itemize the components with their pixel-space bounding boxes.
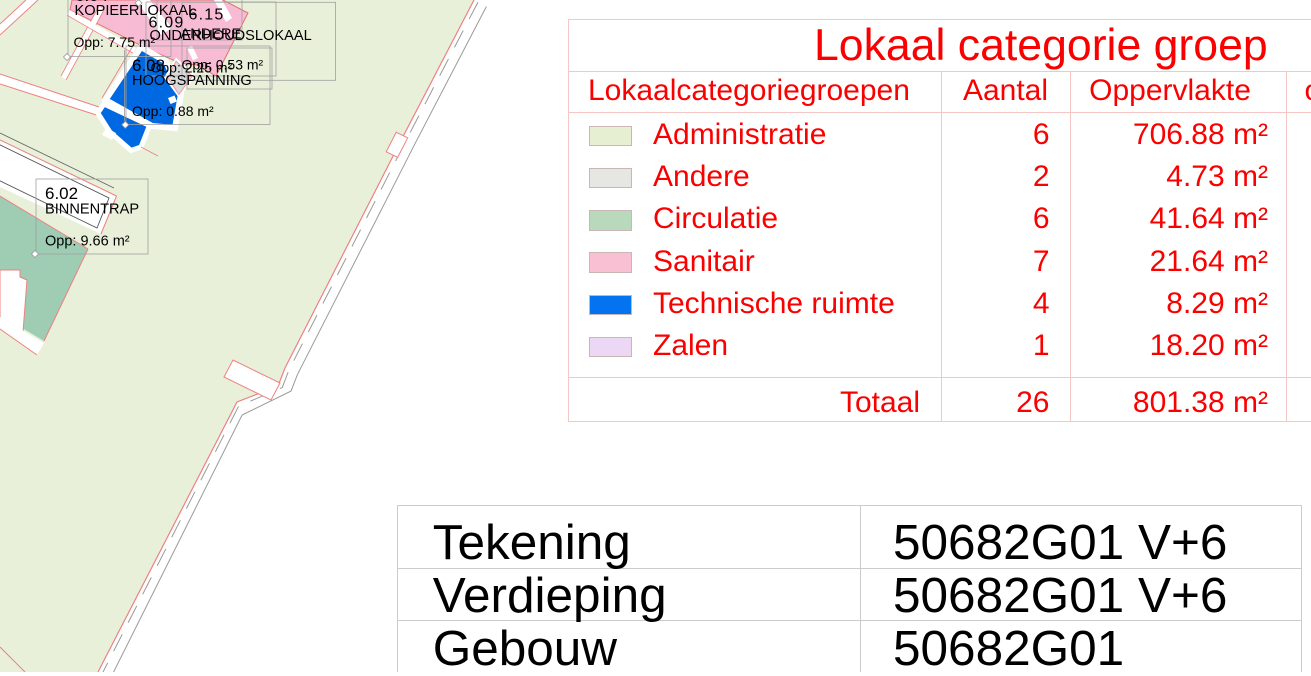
svg-text:Opp: 0.53 m²: Opp: 0.53 m² [182,56,264,72]
svg-text:Opp: 7.75 m²: Opp: 7.75 m² [74,34,156,50]
svg-text:Opp: 9.66 m²: Opp: 9.66 m² [45,233,130,249]
svg-text:HOOGSPANNING: HOOGSPANNING [132,73,252,89]
svg-text:6.15: 6.15 [189,6,225,23]
svg-text:Opp: 0.88 m²: Opp: 0.88 m² [132,103,214,119]
svg-text:BINNENTRAP: BINNENTRAP [45,202,139,218]
svg-text:ONDERHOUDSLOKAAL: ONDERHOUDSLOKAAL [150,28,312,44]
svg-text:6.02: 6.02 [45,184,78,203]
